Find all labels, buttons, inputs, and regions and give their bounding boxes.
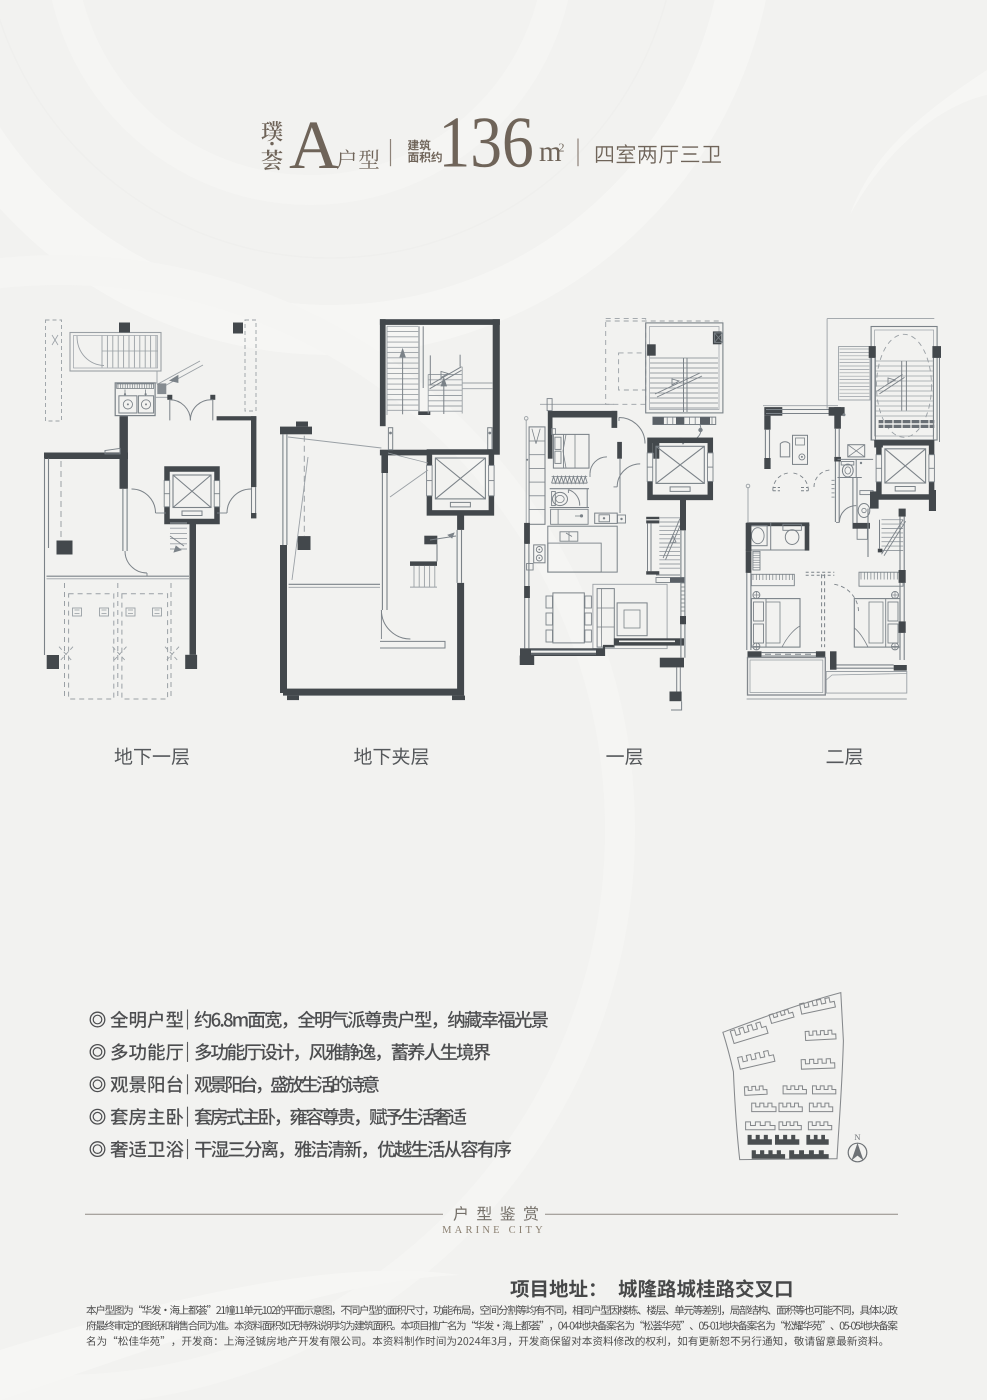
svg-text:N: N [854,1132,860,1142]
svg-text:MARINE CITY: MARINE CITY [442,1225,546,1236]
